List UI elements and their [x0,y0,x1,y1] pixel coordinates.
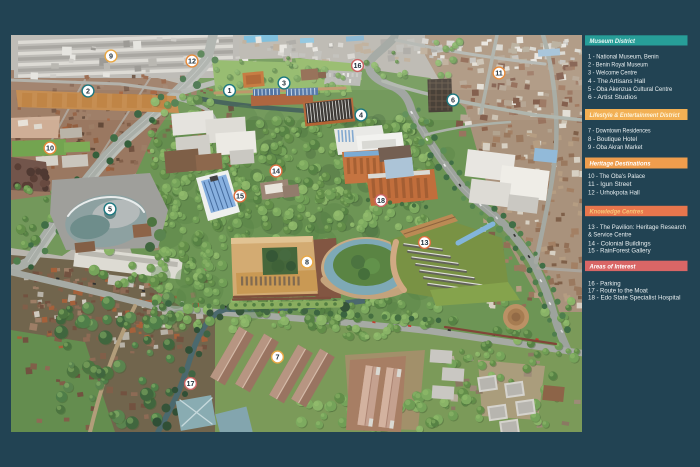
svg-text:16: 16 [354,61,362,70]
svg-text:16 - Parking: 16 - Parking [588,280,621,287]
svg-text:& Service Centre: & Service Centre [588,232,632,239]
svg-text:15: 15 [236,192,244,201]
svg-text:14: 14 [272,167,280,176]
svg-text:Areas of Interest: Areas of Interest [589,263,637,270]
svg-text:10 - The Oba's Palace: 10 - The Oba's Palace [588,173,645,180]
svg-text:13 - The Pavilion: Heritage Re: 13 - The Pavilion: Heritage Research [588,224,686,231]
svg-text:18 - Edo State Specialist Hosp: 18 - Edo State Specialist Hospital [588,295,681,302]
svg-text:11 - Igun Street: 11 - Igun Street [588,181,632,188]
svg-text:7: 7 [276,353,280,362]
svg-text:4: 4 [359,111,363,120]
svg-text:11: 11 [495,69,503,78]
svg-text:7 - Downtown Residences: 7 - Downtown Residences [588,128,651,135]
svg-text:4 - The Artisans Hall: 4 - The Artisans Hall [588,78,645,85]
svg-text:5 - Oba Akenzua Cultural Centr: 5 - Oba Akenzua Cultural Centre [588,86,673,93]
svg-text:17 - Route to the Moat: 17 - Route to the Moat [588,288,648,295]
svg-text:5: 5 [108,205,112,214]
svg-text:Knowledge Centres: Knowledge Centres [590,208,644,215]
svg-text:3 - Welcome Centre: 3 - Welcome Centre [588,70,637,77]
svg-text:10: 10 [46,144,54,153]
svg-text:12: 12 [188,57,196,66]
svg-text:Museum District: Museum District [590,38,636,45]
svg-text:6: 6 [451,96,455,105]
svg-text:13: 13 [421,238,429,247]
svg-text:15 - RainForest Gallery: 15 - RainForest Gallery [588,248,651,255]
svg-text:2: 2 [86,87,90,96]
svg-text:9: 9 [109,52,113,61]
svg-text:9 - Oba Akran Market: 9 - Oba Akran Market [588,144,643,151]
svg-text:Heritage Destinations: Heritage Destinations [590,160,651,167]
svg-text:1: 1 [228,86,232,95]
svg-text:14 - Colonial Buildings: 14 - Colonial Buildings [588,241,651,248]
svg-text:2 - Benin Royal Museum: 2 - Benin Royal Museum [588,62,648,69]
svg-text:18: 18 [377,196,385,205]
svg-text:8 - Boutique Hotel: 8 - Boutique Hotel [588,136,637,143]
svg-text:1 - National Museum, Benin: 1 - National Museum, Benin [588,53,659,60]
svg-text:17: 17 [187,379,195,388]
svg-text:3: 3 [282,79,286,88]
svg-text:Lifestyle & Entertainment Dist: Lifestyle & Entertainment District [590,112,681,119]
svg-text:12 - Urhokpota Hall: 12 - Urhokpota Hall [588,189,640,196]
svg-text:8: 8 [305,258,309,267]
svg-text:6 - Artist Studios: 6 - Artist Studios [588,94,637,101]
